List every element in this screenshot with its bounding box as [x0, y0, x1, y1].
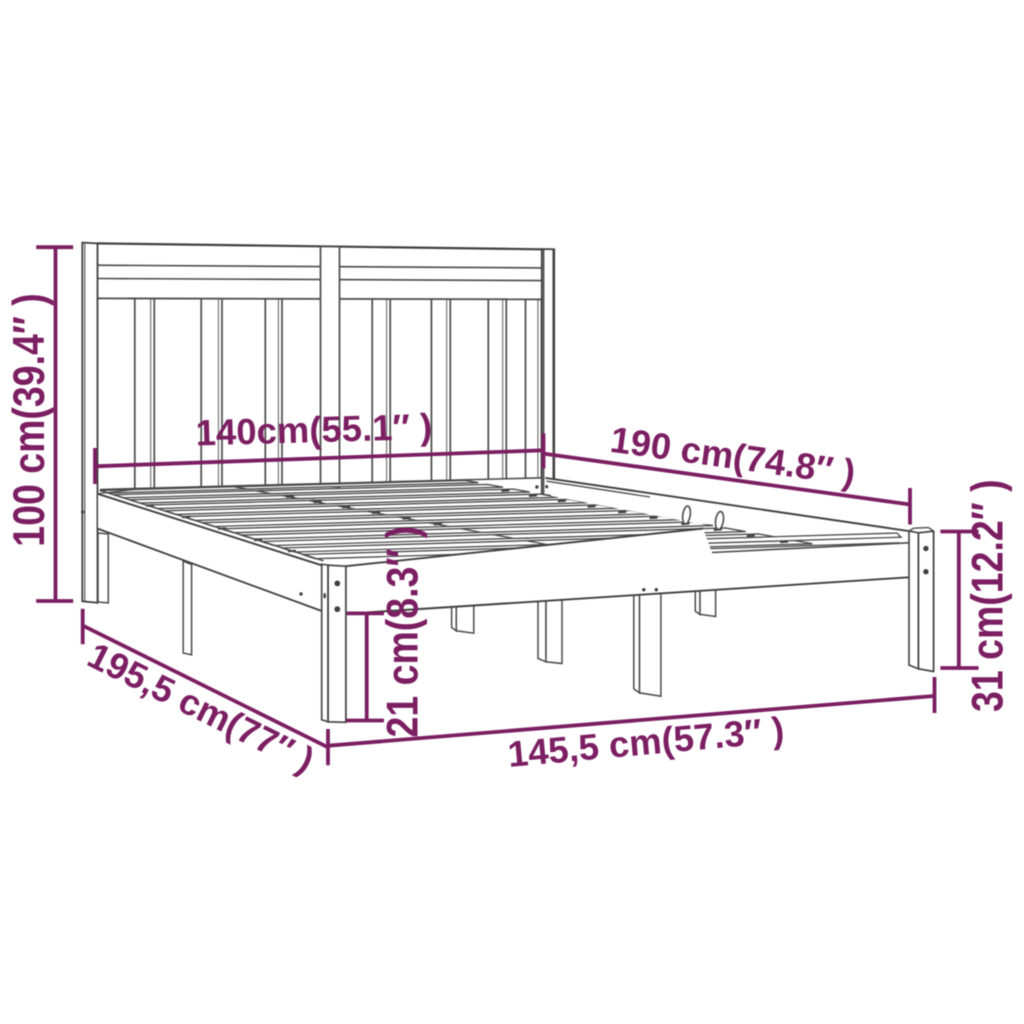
svg-text:100 cm(39.4″ ): 100 cm(39.4″ ): [4, 293, 54, 546]
svg-text:140cm(55.1″ ): 140cm(55.1″ ): [195, 406, 433, 454]
svg-text:21 cm(8.3″ ): 21 cm(8.3″ ): [378, 526, 428, 738]
svg-text:31 cm(12.2″ ): 31 cm(12.2″ ): [963, 479, 1013, 712]
